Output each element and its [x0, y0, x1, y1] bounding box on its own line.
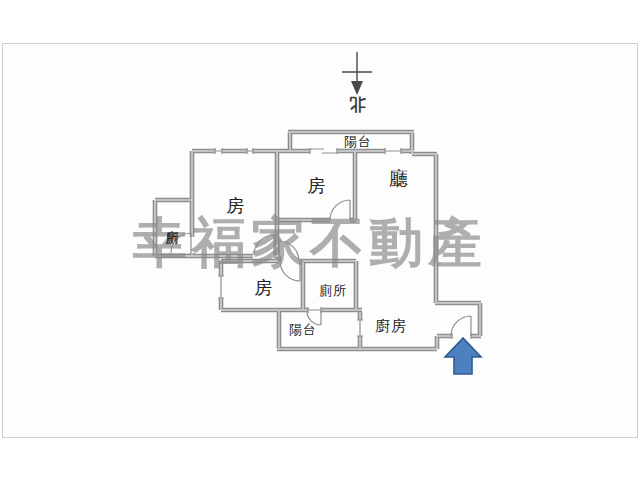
room-label-toilet-left: 廁所 — [166, 219, 179, 223]
entrance-arrow-icon — [445, 338, 481, 374]
room-label-living-room: 廳 — [389, 169, 409, 188]
room-label-bedroom-top: 房 — [308, 177, 327, 195]
watermark: 幸福家不動產 — [133, 207, 487, 280]
room-label-toilet-bottom: 廁所 — [319, 284, 347, 297]
room-label-balcony-bottom: 陽台 — [289, 323, 317, 336]
room-label-bedroom-bottom: 房 — [255, 279, 274, 297]
room-label-balcony-top: 陽台 — [344, 135, 372, 148]
north-label: 北 — [349, 96, 366, 112]
room-label-bedroom-left: 房 — [227, 197, 246, 215]
floorplan-screenshot: 幸福家不動產 北 陽台 廳 房 房 廁所 房 廁所 陽台 廚房 — [0, 0, 640, 480]
compass-icon — [342, 52, 372, 95]
room-label-kitchen: 廚房 — [375, 319, 407, 334]
